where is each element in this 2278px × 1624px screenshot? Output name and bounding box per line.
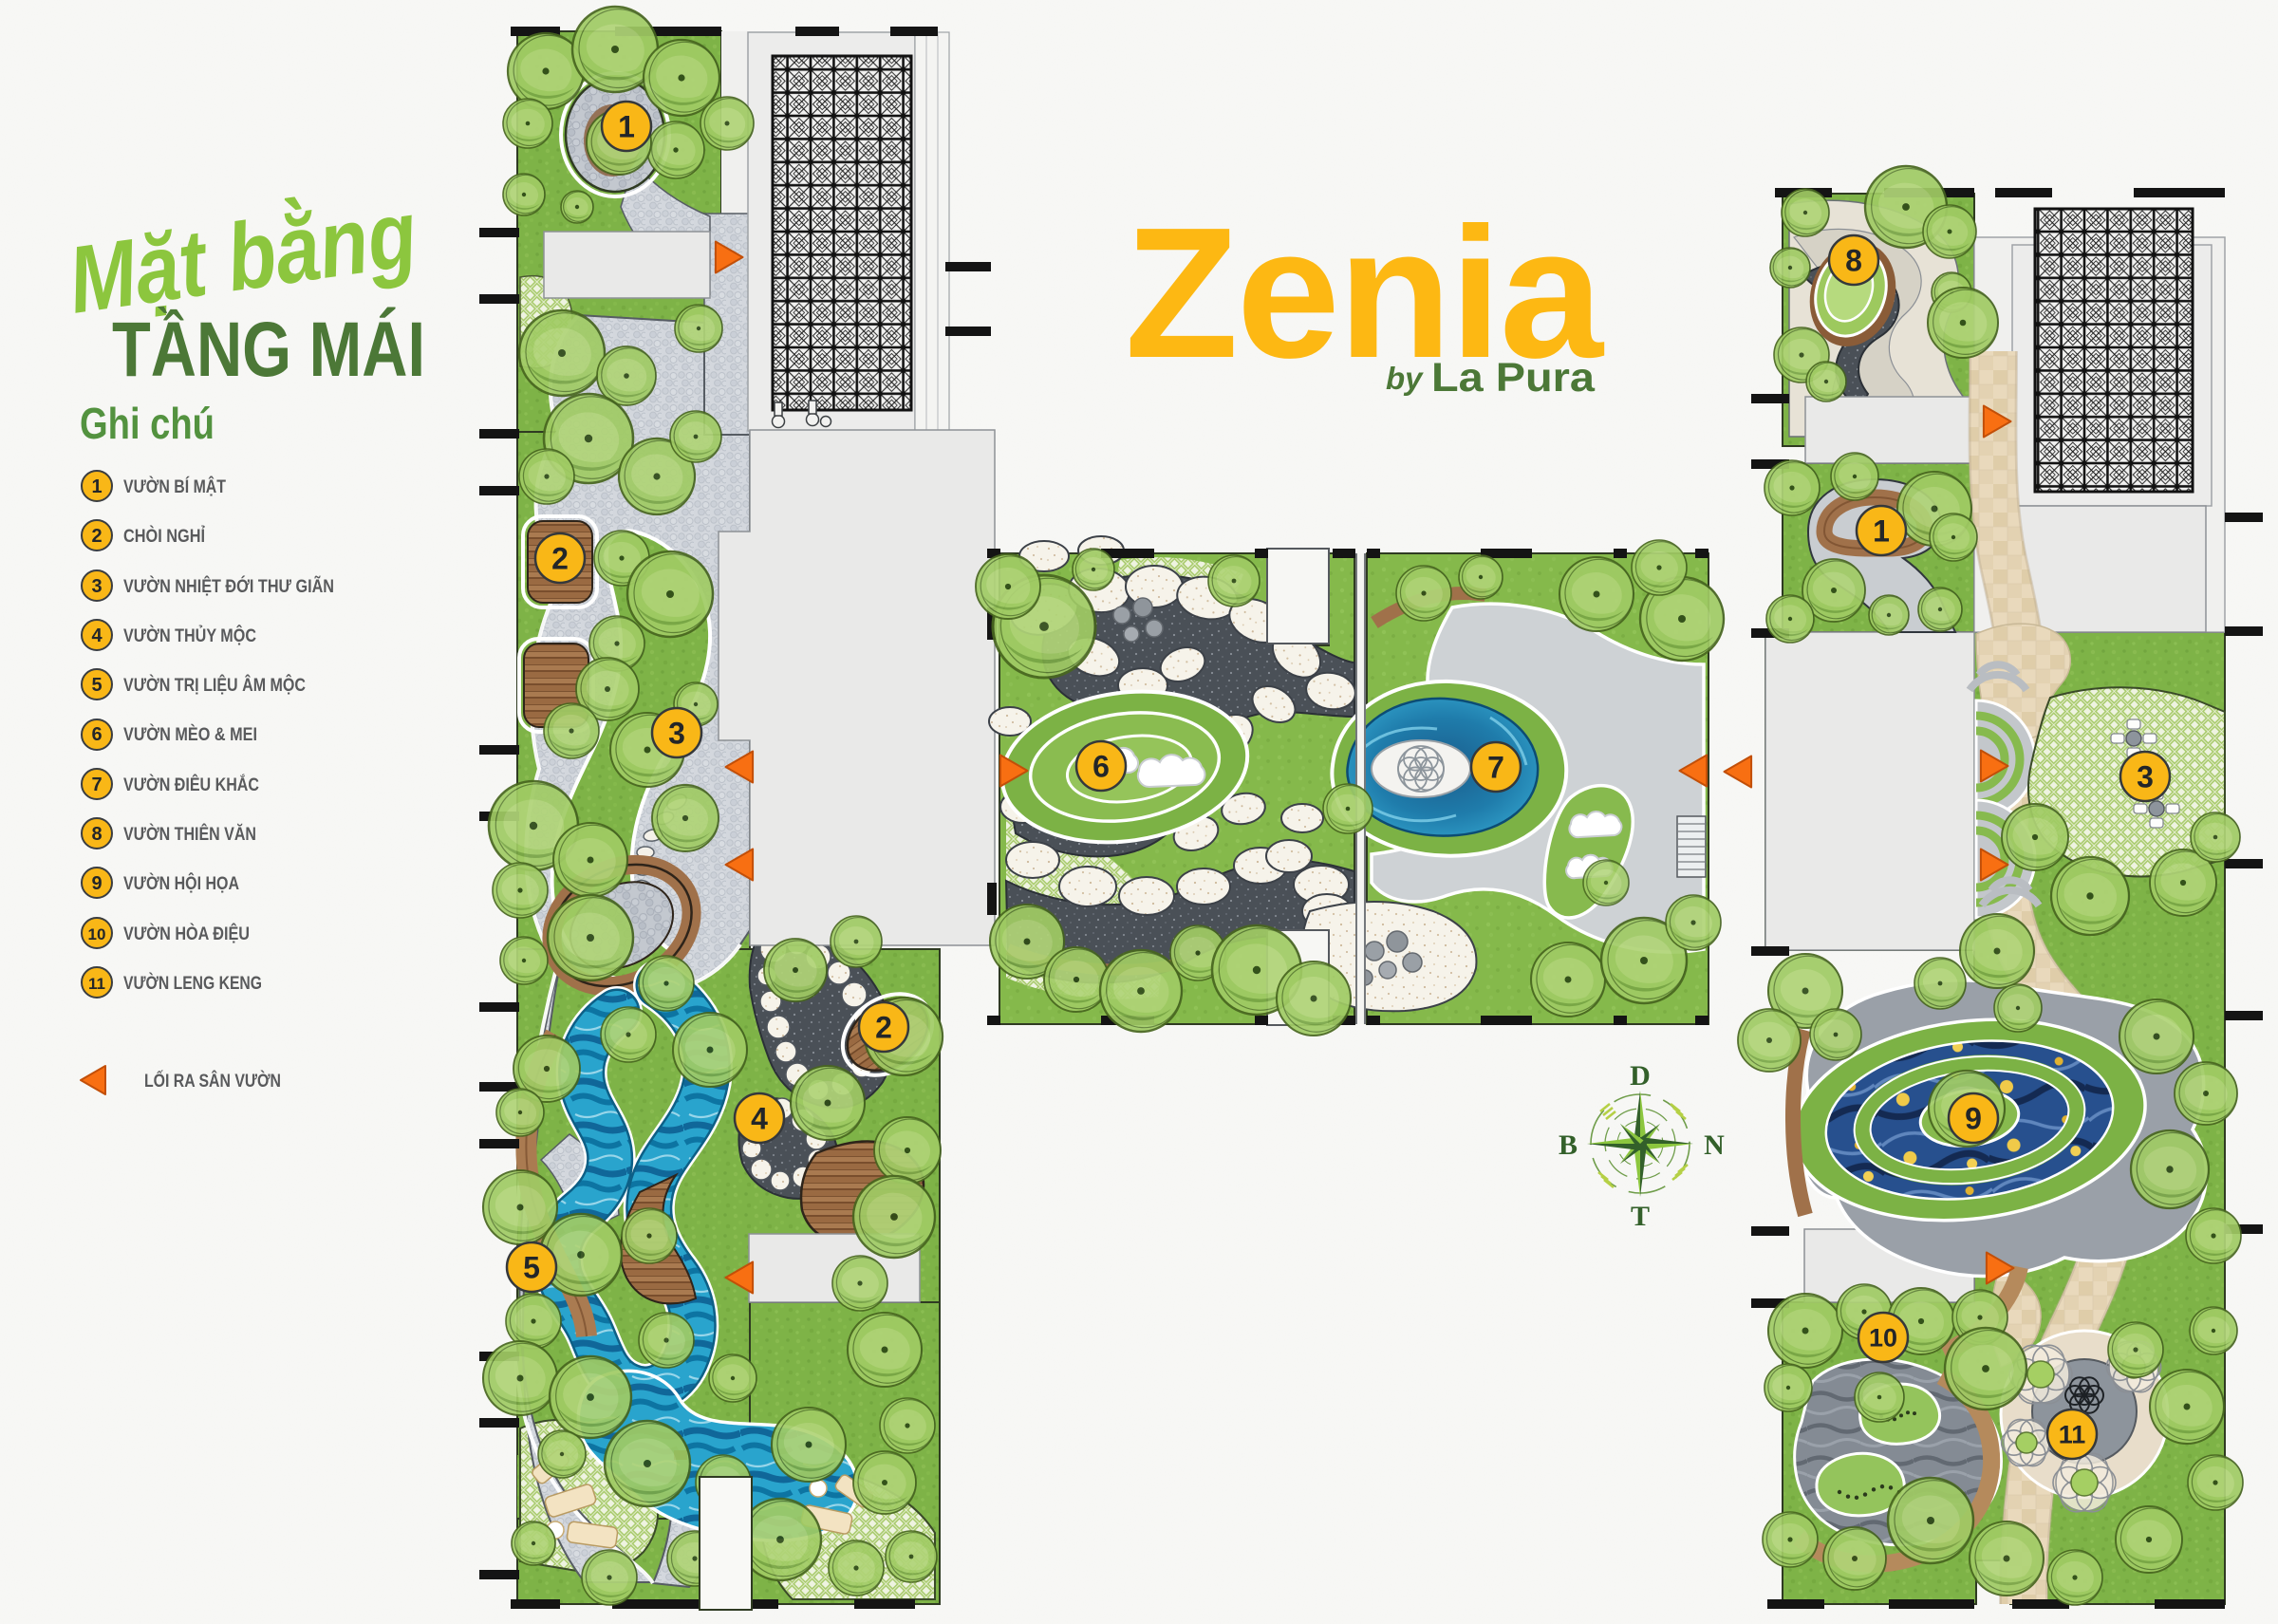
svg-text:4: 4 [91, 625, 103, 646]
svg-text:3: 3 [668, 717, 685, 751]
svg-text:11: 11 [88, 975, 105, 993]
svg-text:VƯỜN HỘI HỌA: VƯỜN HỘI HỌA [123, 873, 239, 894]
svg-text:VƯỜN HÒA ĐIỆU: VƯỜN HÒA ĐIỆU [123, 924, 250, 944]
svg-text:La Pura: La Pura [1431, 355, 1596, 401]
svg-text:1: 1 [1873, 514, 1890, 549]
svg-text:4: 4 [751, 1102, 768, 1136]
svg-text:TẦNG MÁI: TẦNG MÁI [112, 307, 425, 393]
svg-text:9: 9 [1965, 1102, 1982, 1136]
svg-text:VƯỜN NHIỆT ĐỚI THƯ GIÃN: VƯỜN NHIỆT ĐỚI THƯ GIÃN [123, 576, 334, 597]
svg-text:D: D [1630, 1060, 1651, 1092]
svg-text:2: 2 [91, 526, 102, 547]
svg-text:3: 3 [91, 576, 102, 597]
svg-text:9: 9 [91, 873, 102, 894]
svg-text:8: 8 [1845, 244, 1862, 278]
svg-text:7: 7 [91, 775, 102, 795]
svg-text:11: 11 [2059, 1421, 2086, 1449]
svg-text:5: 5 [91, 675, 102, 696]
svg-text:VƯỜN THỦY MỘC: VƯỜN THỦY MỘC [123, 625, 256, 646]
svg-text:5: 5 [523, 1251, 540, 1285]
svg-text:VƯỜN LENG KENG: VƯỜN LENG KENG [123, 973, 262, 994]
svg-text:VƯỜN ĐIÊU KHẮC: VƯỜN ĐIÊU KHẮC [123, 775, 259, 795]
svg-text:10: 10 [1869, 1324, 1897, 1353]
svg-text:6: 6 [1092, 750, 1110, 784]
svg-text:CHÒI NGHỈ: CHÒI NGHỈ [123, 526, 205, 547]
svg-text:T: T [1631, 1201, 1650, 1232]
svg-text:1: 1 [91, 476, 102, 497]
svg-text:2: 2 [875, 1011, 892, 1045]
svg-text:Ghi chú: Ghi chú [80, 399, 215, 448]
svg-text:LỐI RA SÂN VƯỜN: LỐI RA SÂN VƯỜN [144, 1071, 281, 1092]
svg-text:1: 1 [618, 110, 635, 144]
svg-text:VƯỜN BÍ MẬT: VƯỜN BÍ MẬT [123, 476, 226, 497]
svg-text:by: by [1386, 361, 1424, 396]
svg-text:B: B [1559, 1129, 1578, 1161]
svg-text:10: 10 [88, 925, 106, 943]
svg-text:2: 2 [551, 542, 569, 576]
svg-text:6: 6 [91, 724, 102, 745]
svg-text:VƯỜN THIÊN VĂN: VƯỜN THIÊN VĂN [123, 824, 256, 845]
svg-text:VƯỜN MÈO & MEI: VƯỜN MÈO & MEI [123, 724, 257, 745]
svg-text:VƯỜN TRỊ LIỆU ÂM MỘC: VƯỜN TRỊ LIỆU ÂM MỘC [123, 675, 306, 696]
svg-text:N: N [1704, 1129, 1725, 1161]
svg-text:3: 3 [2137, 760, 2154, 794]
svg-text:8: 8 [91, 824, 102, 845]
svg-text:7: 7 [1487, 751, 1504, 785]
